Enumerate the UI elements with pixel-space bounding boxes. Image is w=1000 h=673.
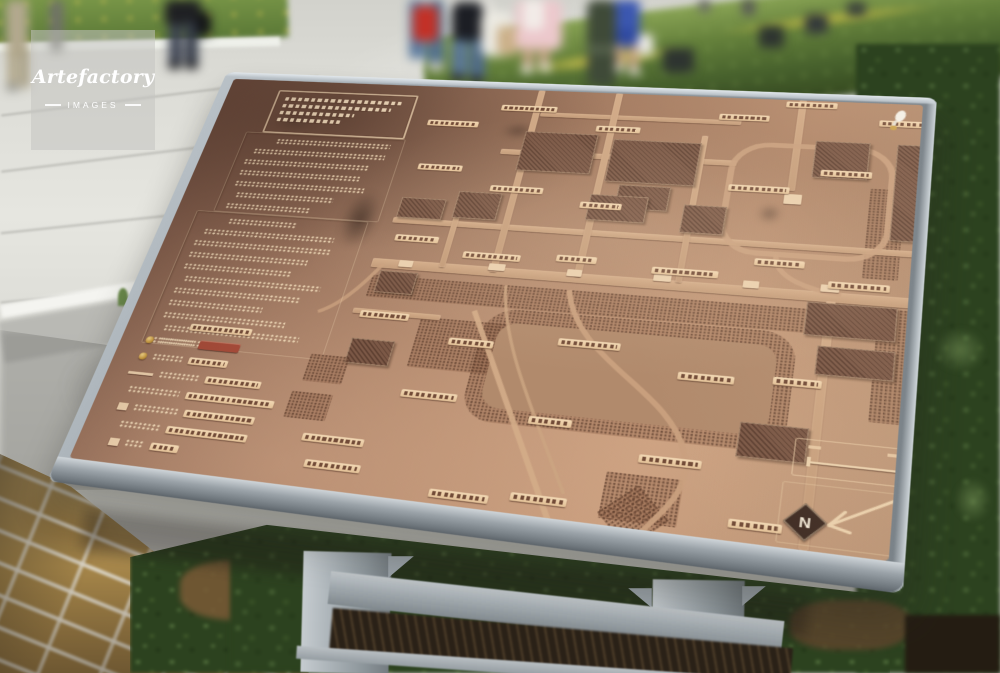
watermark-brand: Artefactory — [31, 66, 155, 88]
legend-texture-swatch — [283, 391, 333, 421]
map-platform-mark — [742, 280, 759, 288]
map-label-strip — [595, 126, 640, 134]
map-label-strip — [638, 454, 702, 469]
bollard-post — [759, 26, 784, 48]
map-label-text — [776, 379, 818, 387]
map-label-strip — [528, 416, 573, 428]
legend-label-text — [192, 326, 249, 335]
braille-text-line — [239, 170, 360, 183]
pedestrian-shoe — [539, 64, 551, 71]
legend-label-text — [188, 394, 271, 407]
map-building-block — [604, 139, 702, 186]
map-label-text — [583, 203, 619, 208]
scale-mark — [887, 454, 900, 459]
legend-braille — [119, 420, 161, 432]
map-building-block — [515, 131, 598, 174]
map-label-text — [722, 115, 766, 120]
legend-label-text — [152, 445, 175, 451]
map-label-text — [432, 491, 485, 502]
legend-label-text — [191, 359, 225, 366]
map-label-strip — [448, 337, 495, 348]
map-building-block — [373, 270, 418, 295]
pedestrian-legs — [6, 0, 28, 55]
map-label-text — [465, 253, 517, 260]
legend-braille — [133, 404, 179, 416]
map-building-block — [814, 346, 896, 382]
map-label-text — [421, 165, 460, 170]
bollard-ring — [587, 46, 616, 53]
map-label-text — [642, 457, 698, 467]
map-label-strip — [719, 114, 770, 122]
map-platform-mark — [783, 194, 802, 205]
map-label-text — [513, 495, 563, 505]
map-label-text — [831, 283, 886, 291]
legend-label-text — [186, 412, 251, 423]
map-label-strip — [394, 234, 439, 243]
pedestrian-leg — [20, 48, 29, 88]
pedestrian-leg — [169, 24, 182, 64]
map-label-strip — [428, 488, 489, 504]
map-label-text — [404, 391, 454, 400]
pedestrian-shoe — [168, 62, 181, 69]
legend-red-bar — [197, 340, 241, 353]
legend-screw-marker — [145, 336, 155, 344]
pedestrian-figure — [742, 0, 755, 15]
legend-braille — [158, 371, 199, 382]
pedestrian-leg — [8, 50, 17, 86]
map-label-text — [363, 312, 407, 319]
map-building-block — [679, 204, 727, 235]
map-label-strip — [772, 377, 822, 389]
pedestrian-leg — [523, 47, 533, 68]
scale-mark — [808, 445, 821, 449]
legend-label-bar — [204, 376, 262, 389]
map-platform-mark — [488, 263, 506, 271]
pedestrian-leg — [629, 45, 638, 70]
shoulder-bag — [196, 12, 211, 36]
scale-tick — [806, 456, 810, 466]
map-label-strip — [879, 120, 923, 128]
map-label-strip — [786, 101, 838, 109]
map-label-text — [531, 418, 568, 426]
map-label-strip — [427, 120, 479, 128]
watermark-line-left — [45, 104, 61, 106]
legend-braille — [124, 439, 145, 449]
braille-text-line — [243, 159, 369, 172]
legend-label-bar — [187, 357, 229, 368]
watermark-line-right — [125, 104, 141, 106]
pedestrian-leg — [615, 45, 624, 67]
map-label-strip — [501, 105, 558, 113]
legend-square-marker — [108, 437, 121, 446]
title-text-lines — [276, 97, 406, 127]
braille-text-line — [168, 299, 263, 314]
braille-text-line — [253, 149, 386, 162]
map-label-strip — [400, 389, 458, 402]
photo-scene: N Artefactory IMAGES — [0, 0, 1000, 673]
map-label-strip — [462, 251, 521, 262]
legend-braille — [127, 386, 180, 399]
watermark-subtitle-text: IMAGES — [67, 100, 118, 110]
legend-label-bar — [183, 410, 256, 425]
map-platform-mark — [566, 269, 582, 277]
pedestrian-shoe — [629, 68, 640, 75]
legend-label-text — [207, 378, 258, 387]
pedestrian-shoe — [185, 62, 198, 69]
pedestrian-shoe — [410, 58, 424, 67]
legend-label-bar — [165, 426, 248, 443]
red-bag — [413, 6, 438, 41]
embossed-title-box — [262, 90, 419, 139]
map-label-strip — [677, 372, 735, 385]
map-label-text — [883, 122, 923, 127]
title-text-line — [279, 111, 355, 118]
white-bag — [638, 34, 653, 55]
legend-line-marker — [128, 370, 154, 375]
legend-screw-marker — [138, 352, 148, 360]
map-label-strip — [557, 338, 621, 351]
scale-line — [806, 461, 899, 474]
map-building-block — [451, 191, 502, 220]
map-label-strip — [417, 163, 463, 171]
map-platform-mark — [653, 274, 672, 282]
pedestrian-figure — [699, 0, 710, 12]
map-building-block — [803, 301, 898, 342]
map-label-text — [559, 256, 594, 262]
map-label-strip — [727, 518, 782, 533]
watermark-subtitle: IMAGES — [31, 100, 155, 110]
bollard-post — [663, 48, 694, 73]
braille-paragraph-top — [223, 138, 391, 224]
map-label-text — [789, 103, 834, 108]
map-label-text — [398, 236, 436, 242]
legend-braille — [152, 354, 183, 364]
pedestrian-shoe — [521, 66, 533, 73]
map-platform-mark — [398, 260, 414, 268]
north-letter: N — [789, 508, 820, 536]
watermark-box: Artefactory IMAGES — [31, 30, 155, 150]
tote-bag — [497, 26, 518, 55]
braille-text-line — [235, 192, 335, 204]
map-label-text — [732, 521, 779, 531]
pedestrian-leg — [452, 40, 467, 76]
map-label-text — [824, 172, 869, 178]
map-label-text — [451, 340, 490, 347]
map-label-text — [504, 106, 555, 111]
pedestrian-shoe — [429, 62, 443, 71]
map-label-strip — [556, 255, 598, 265]
backpack — [452, 2, 483, 43]
map-label-strip — [509, 492, 567, 507]
map-label-text — [430, 121, 476, 126]
map-label-strip — [359, 310, 410, 321]
soil-corner — [905, 615, 1000, 673]
map-building-block — [396, 197, 447, 220]
map-label-text — [731, 186, 786, 192]
map-label-text — [681, 374, 731, 382]
legend-label-bar — [149, 442, 180, 453]
bollard — [587, 0, 616, 87]
pedestrian-coat — [523, 0, 544, 30]
map-label-strip — [579, 201, 622, 210]
pedestrian-shoe — [6, 84, 19, 91]
bollard-post — [847, 2, 866, 16]
map-label-text — [493, 187, 541, 193]
map-label-strip — [728, 184, 790, 194]
map-label-text — [561, 340, 617, 349]
map-label-text — [599, 127, 638, 132]
legend-label-text — [168, 428, 244, 440]
bush-highlight — [948, 470, 998, 530]
legend-label-bar — [184, 392, 274, 409]
bollard-post — [805, 14, 828, 34]
map-label-strip — [754, 258, 805, 269]
legend-braille — [159, 337, 194, 347]
bush-highlight — [925, 320, 995, 380]
legend-square-marker — [116, 402, 129, 410]
braille-text-line — [225, 203, 311, 215]
title-text-line — [276, 118, 340, 124]
map-label-text — [758, 260, 802, 267]
